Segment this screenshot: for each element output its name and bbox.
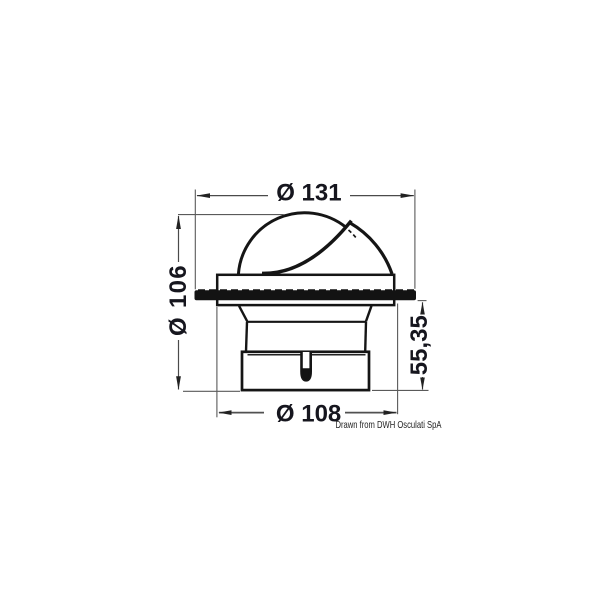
svg-text:55,35: 55,35 (406, 315, 433, 375)
svg-text:Ø 106: Ø 106 (165, 264, 192, 336)
svg-text:Drawn from DWH Osculati SpA: Drawn from DWH Osculati SpA (336, 419, 442, 430)
svg-text:Ø 131: Ø 131 (276, 179, 341, 206)
svg-text:Ø 108: Ø 108 (276, 401, 341, 428)
